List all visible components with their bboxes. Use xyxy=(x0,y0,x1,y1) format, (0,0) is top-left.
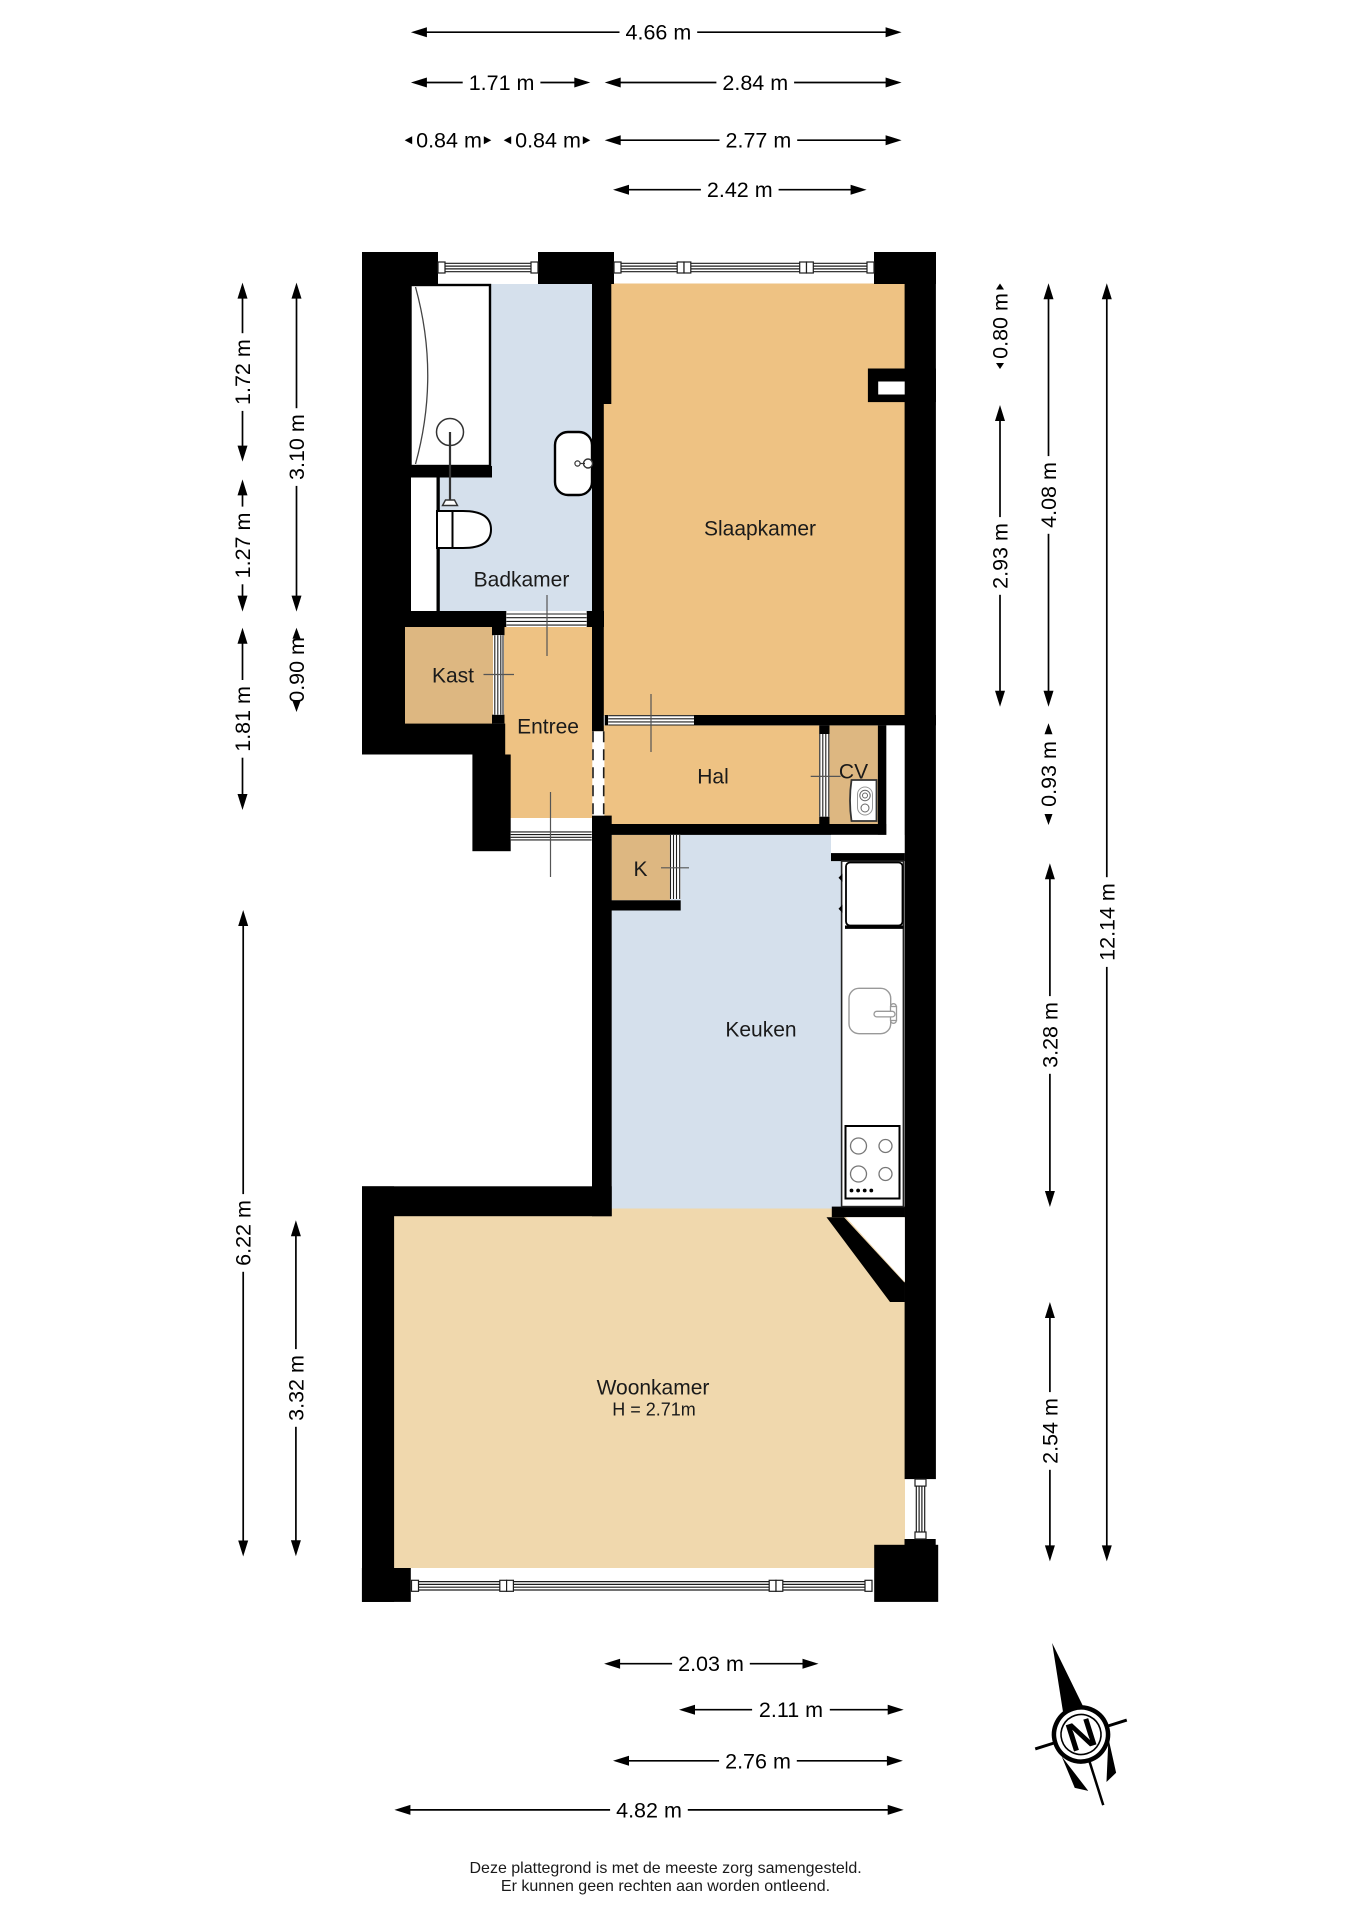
svg-text:12.14 m: 12.14 m xyxy=(1095,883,1119,961)
svg-text:4.66 m: 4.66 m xyxy=(626,21,692,45)
svg-text:Kast: Kast xyxy=(432,664,474,687)
svg-text:Badkamer: Badkamer xyxy=(474,568,570,591)
svg-text:2.42 m: 2.42 m xyxy=(707,178,773,202)
svg-text:H = 2.71m: H = 2.71m xyxy=(612,1399,696,1419)
svg-text:3.10 m: 3.10 m xyxy=(285,414,309,480)
svg-text:2.93 m: 2.93 m xyxy=(989,523,1013,589)
svg-text:Keuken: Keuken xyxy=(725,1018,796,1041)
svg-text:0.80 m: 0.80 m xyxy=(989,293,1013,359)
svg-text:2.54 m: 2.54 m xyxy=(1038,1398,1062,1464)
svg-text:4.08 m: 4.08 m xyxy=(1037,462,1061,528)
svg-text:CV: CV xyxy=(839,760,868,783)
svg-text:Slaapkamer: Slaapkamer xyxy=(704,517,816,540)
svg-text:Entree: Entree xyxy=(517,715,579,738)
svg-text:Deze plattegrond is met de mee: Deze plattegrond is met de meeste zorg s… xyxy=(469,1860,861,1877)
svg-text:3.28 m: 3.28 m xyxy=(1038,1002,1062,1068)
svg-text:2.11 m: 2.11 m xyxy=(759,1698,823,1722)
svg-text:2.77 m: 2.77 m xyxy=(726,129,792,153)
svg-text:Hal: Hal xyxy=(697,765,729,788)
svg-text:1.27 m: 1.27 m xyxy=(231,513,255,579)
svg-text:3.32 m: 3.32 m xyxy=(284,1355,308,1421)
svg-text:0.90 m: 0.90 m xyxy=(285,637,309,703)
svg-text:2.84 m: 2.84 m xyxy=(722,71,788,95)
svg-text:4.82 m: 4.82 m xyxy=(616,1798,682,1822)
svg-text:0.84 m: 0.84 m xyxy=(416,129,482,153)
svg-text:Er kunnen geen rechten aan wor: Er kunnen geen rechten aan worden ontlee… xyxy=(501,1878,830,1895)
svg-text:0.84 m: 0.84 m xyxy=(515,129,581,153)
svg-text:1.71 m: 1.71 m xyxy=(469,71,535,95)
svg-text:1.72 m: 1.72 m xyxy=(231,339,255,405)
svg-text:2.76 m: 2.76 m xyxy=(725,1749,791,1773)
svg-text:1.81 m: 1.81 m xyxy=(231,686,255,752)
svg-text:Woonkamer: Woonkamer xyxy=(597,1376,710,1399)
svg-text:0.93 m: 0.93 m xyxy=(1037,741,1061,807)
svg-text:6.22 m: 6.22 m xyxy=(232,1200,256,1266)
svg-text:2.03 m: 2.03 m xyxy=(678,1652,744,1676)
svg-text:K: K xyxy=(633,858,647,881)
